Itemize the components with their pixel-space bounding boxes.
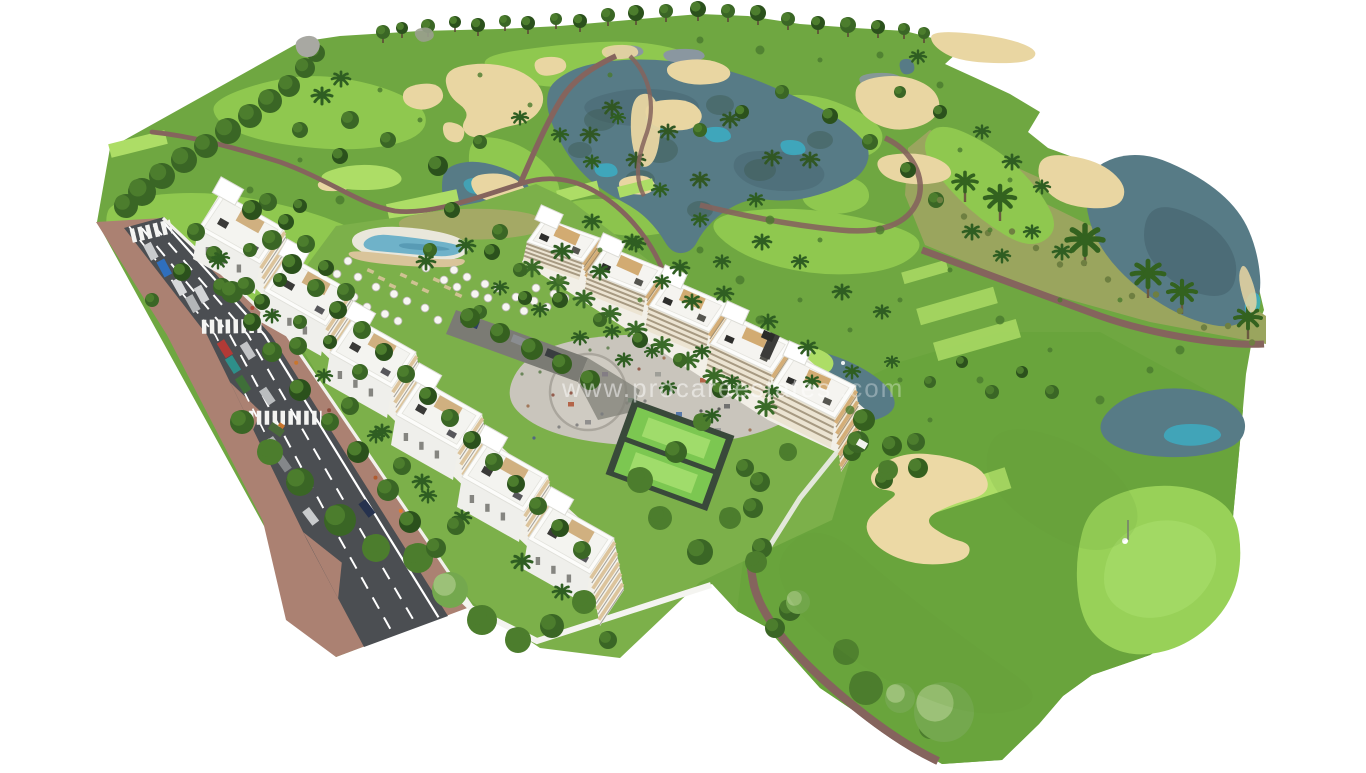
svg-text:www.procareestates: www.procareestates xyxy=(561,373,832,403)
svg-text:.com: .com xyxy=(840,373,904,403)
